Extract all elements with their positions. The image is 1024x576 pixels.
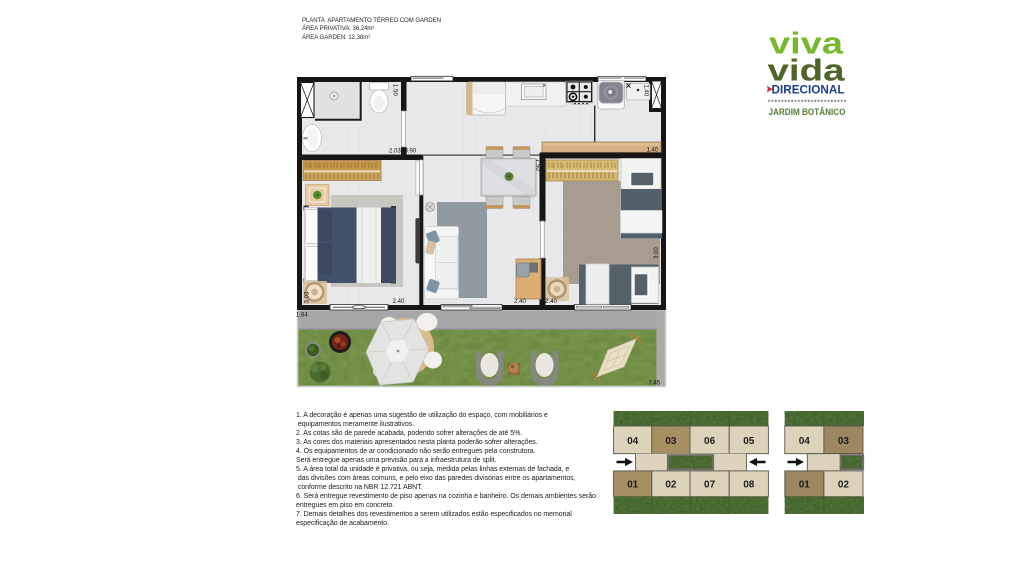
svg-text:DIRECIONAL: DIRECIONAL <box>772 83 845 97</box>
svg-text:7.45: 7.45 <box>649 381 661 387</box>
svg-text:01: 01 <box>627 480 639 491</box>
svg-text:1.64: 1.64 <box>296 313 308 319</box>
svg-text:1.50: 1.50 <box>392 84 398 96</box>
svg-text:3.00: 3.00 <box>654 247 660 259</box>
svg-text:05: 05 <box>743 436 755 447</box>
svg-text:02: 02 <box>665 480 677 491</box>
svg-text:02: 02 <box>838 480 850 491</box>
svg-text:2.40: 2.40 <box>545 299 557 305</box>
svg-text:2.40: 2.40 <box>514 299 526 305</box>
svg-text:1.50: 1.50 <box>534 159 540 171</box>
svg-text:1.40: 1.40 <box>647 148 659 154</box>
svg-text:3.03: 3.03 <box>304 291 310 303</box>
svg-text:06: 06 <box>704 436 716 447</box>
svg-text:2.40: 2.40 <box>393 299 405 305</box>
svg-text:03: 03 <box>665 436 677 447</box>
svg-text:07: 07 <box>704 480 716 491</box>
svg-text:1.40: 1.40 <box>642 85 648 97</box>
svg-text:03: 03 <box>838 436 850 447</box>
svg-text:01: 01 <box>799 480 811 491</box>
svg-text:04: 04 <box>799 436 811 447</box>
svg-text:04: 04 <box>627 436 639 447</box>
svg-text:08: 08 <box>743 480 755 491</box>
svg-text:JARDIM BOTÂNICO: JARDIM BOTÂNICO <box>769 106 846 118</box>
svg-text:3.90: 3.90 <box>405 149 417 155</box>
svg-text:2.03: 2.03 <box>389 149 401 155</box>
